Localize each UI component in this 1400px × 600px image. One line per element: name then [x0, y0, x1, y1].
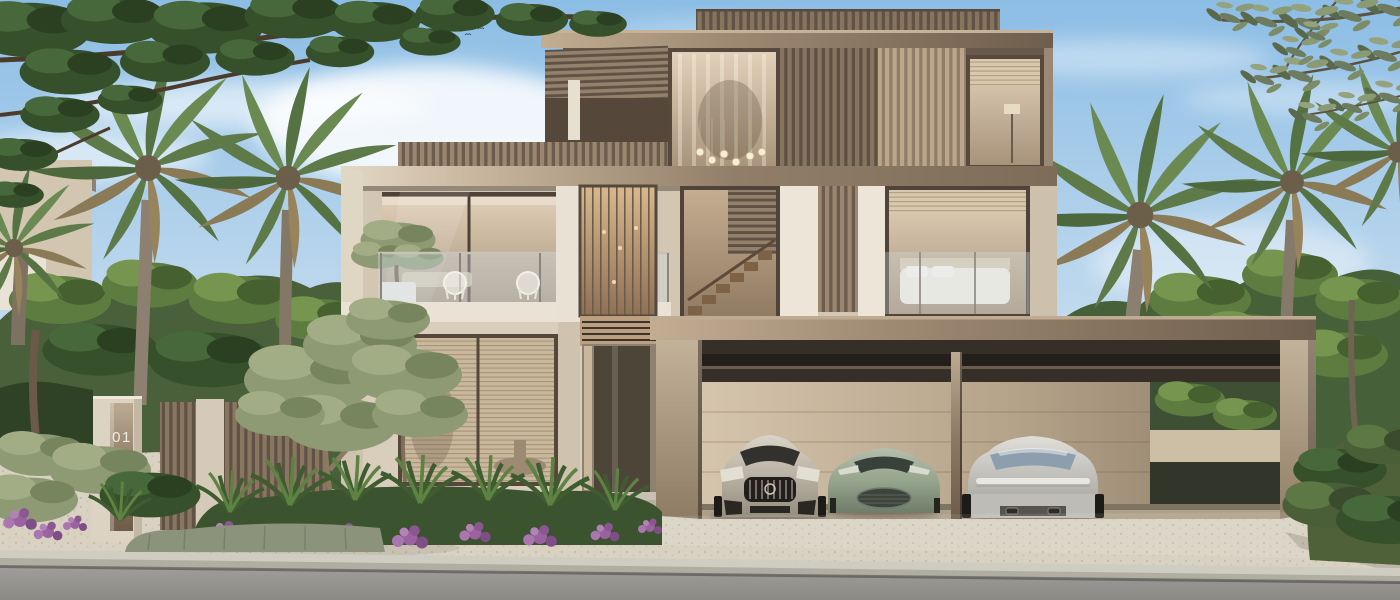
sidelight: [584, 346, 592, 490]
pergola-canopy: [545, 46, 668, 142]
entry-glazing-upper: [580, 186, 656, 316]
slat-screen-right: [878, 48, 966, 166]
carport-roof: [650, 316, 1316, 340]
terrace-chair-left: [444, 272, 466, 300]
bedroom-window: [885, 186, 1030, 318]
carport: [650, 316, 1316, 532]
carport-beam: [702, 354, 1280, 366]
grille: [744, 477, 796, 502]
slat-panel-2f: [818, 186, 858, 312]
villa-exterior-render: 01: [0, 0, 1400, 600]
carport-left-pier: [656, 340, 702, 520]
stairwell-window-upper: [668, 48, 780, 169]
front-door: [594, 346, 650, 492]
unit-number: 01: [112, 429, 132, 446]
stair-window-lower: [680, 186, 780, 322]
taillight-bar: [976, 478, 1090, 484]
oval-grille: [857, 488, 911, 508]
second-floor: [341, 142, 1057, 327]
terrace-parapet-louvers: [398, 142, 668, 168]
carport-open-side: [1150, 381, 1280, 520]
terrace-chair-right: [517, 272, 539, 300]
mid-fascia: [341, 166, 1057, 186]
top-right-window: [966, 55, 1044, 169]
floor-lamp: [1004, 104, 1020, 114]
